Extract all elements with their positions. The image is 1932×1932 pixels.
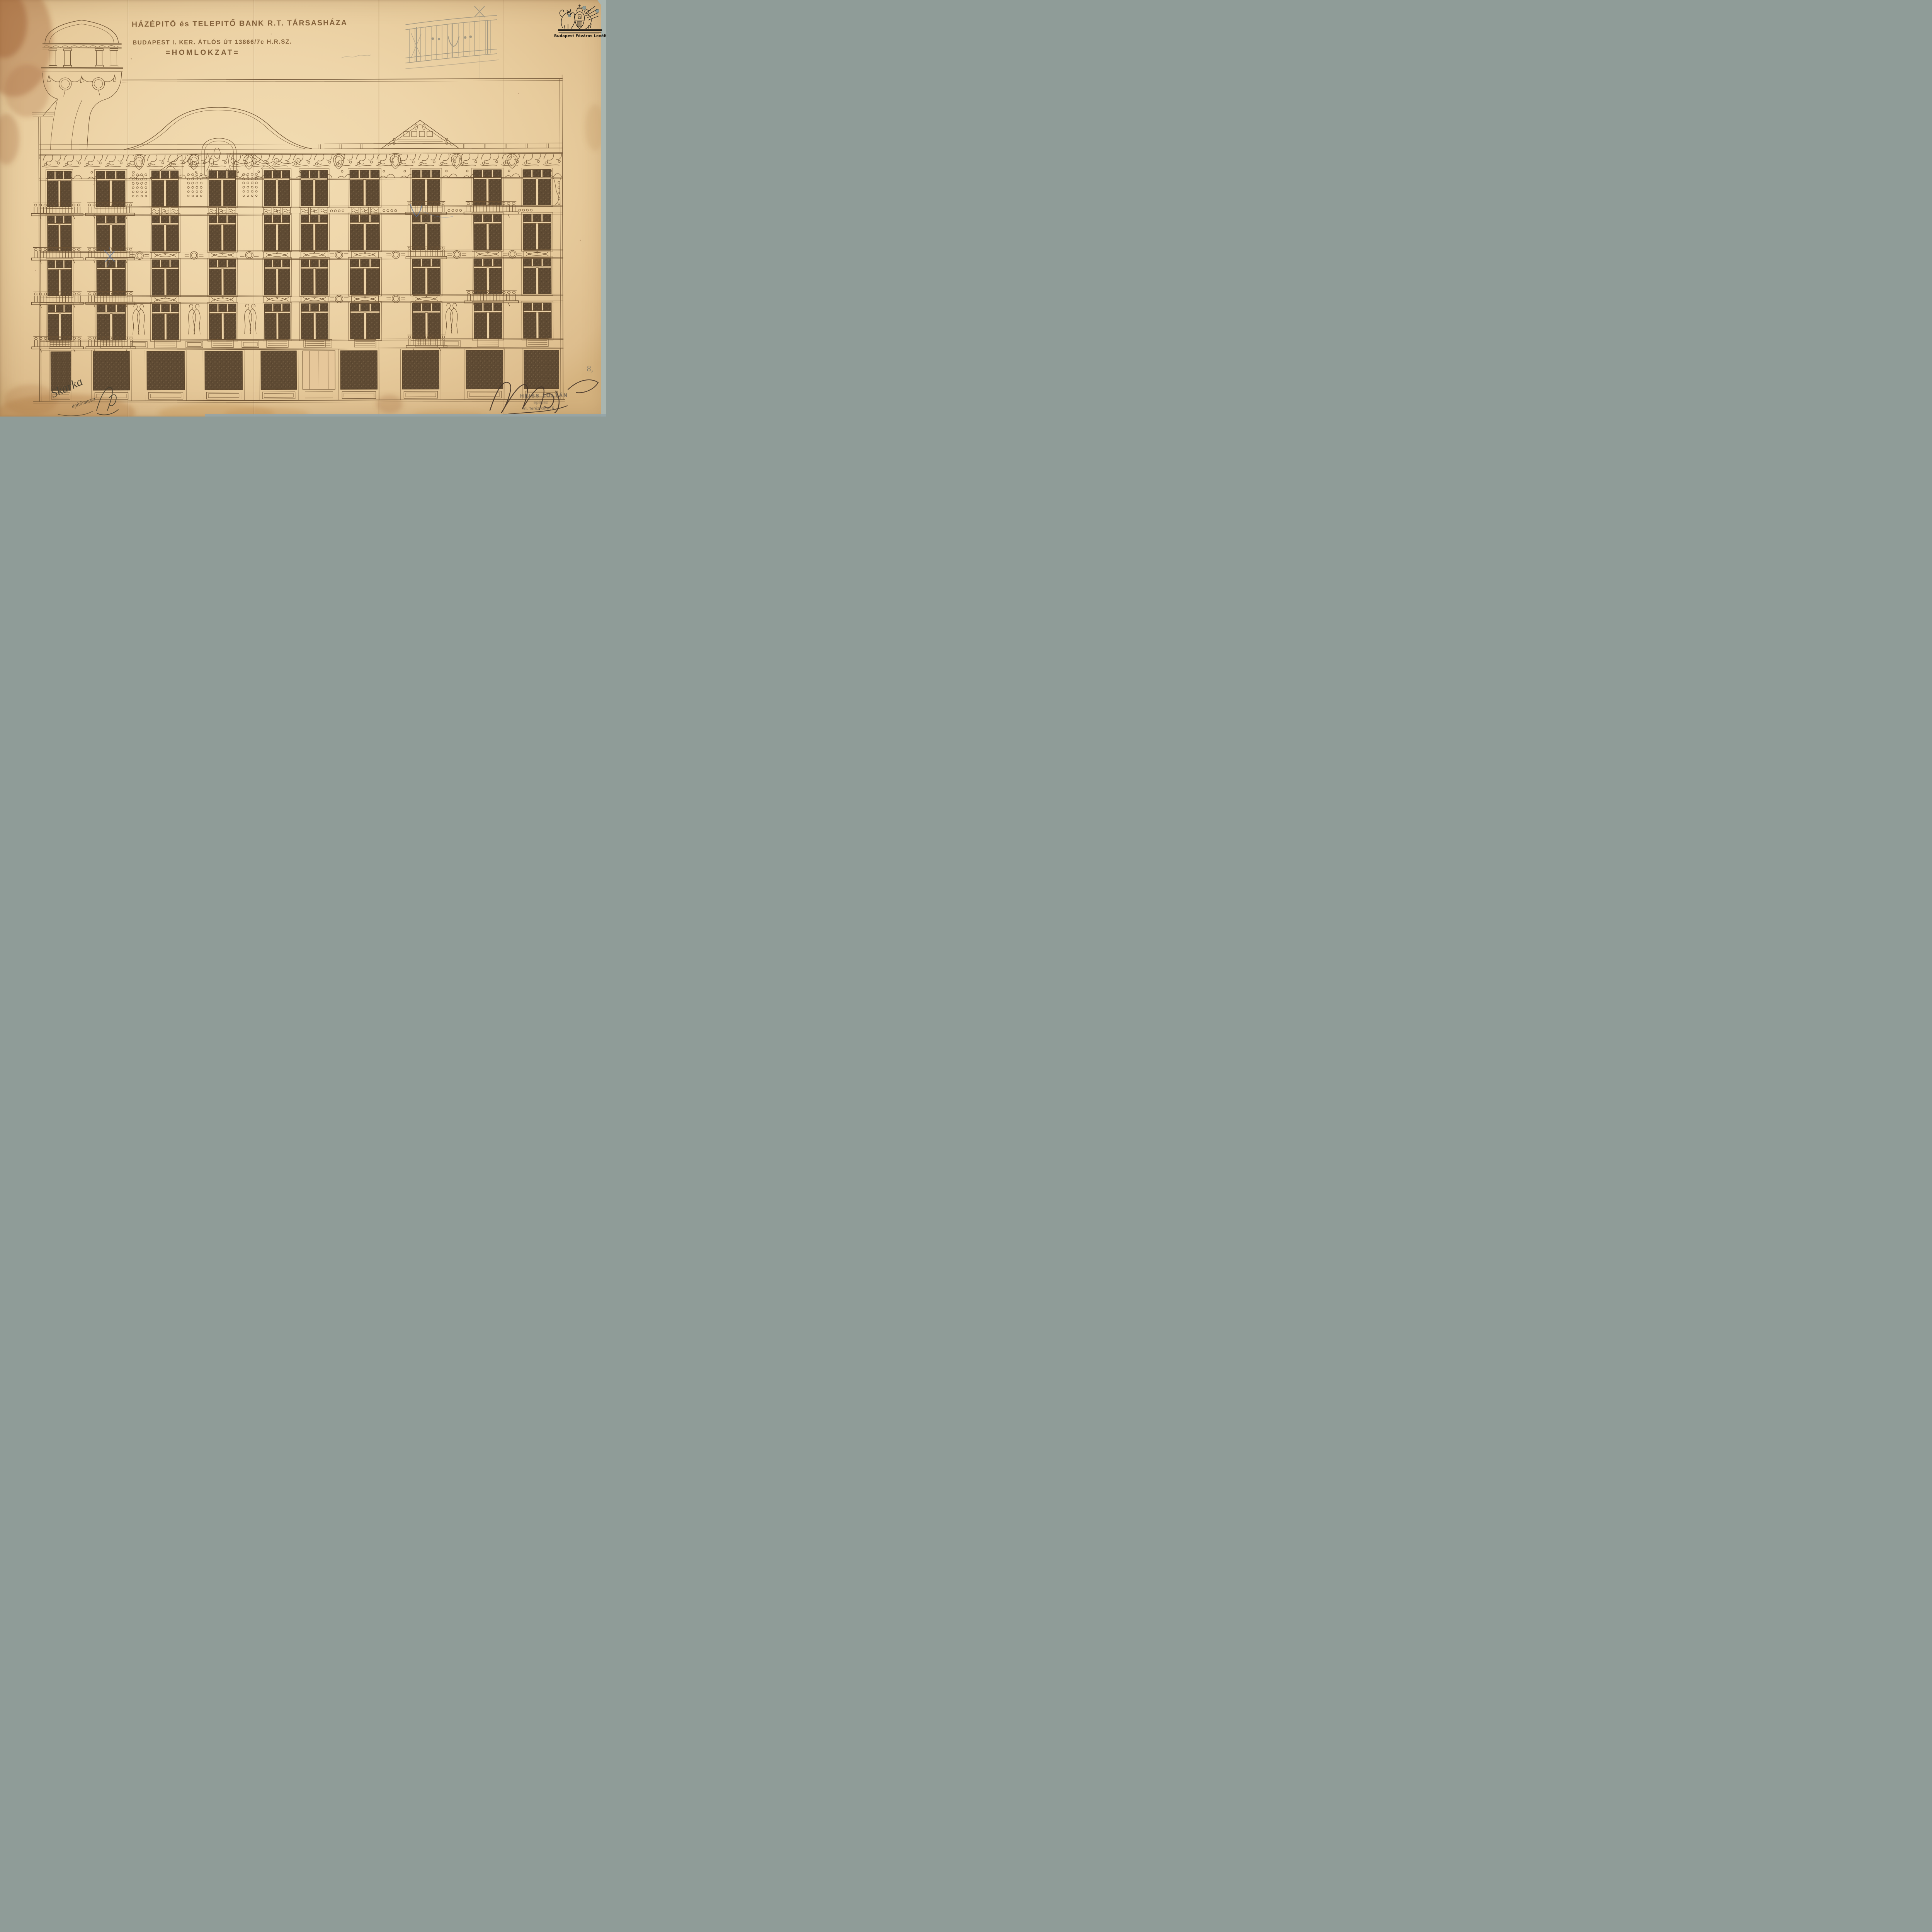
- facade-plan-svg: [0, 0, 606, 417]
- subtitle-homlokzat: =HOMLOKZAT=: [166, 49, 240, 57]
- drawing-sheet: HÁZÉPITŐ és TELEPITŐ BANK R.T. TÁRSASHÁZ…: [0, 0, 606, 417]
- right-pediment: [381, 120, 459, 149]
- facade-drawing: [31, 19, 565, 403]
- page-title-line1: HÁZÉPITŐ és TELEPITŐ BANK R.T. TÁRSASHÁZ…: [132, 19, 347, 29]
- lion-figure: [560, 9, 575, 29]
- page-title-line2: BUDAPEST I. KER. ÁTLÓS ÚT 13866/7c H.R.S…: [133, 39, 292, 47]
- architect-stamp-name: HEISS ZOLTÁN: [520, 392, 568, 399]
- turret-garland-corbel: [43, 73, 122, 150]
- archive-stamp-caption: Budapest Főváros Levéltára: [554, 34, 606, 38]
- attic-base-band: [39, 143, 563, 150]
- roof-cornice-line: [122, 78, 563, 82]
- central-entrance-door: [303, 340, 335, 398]
- ground-storefronts: [33, 339, 565, 403]
- architect-stamp-address: VI. Teréz-körut 6.: [523, 406, 555, 411]
- caryatid-figures: [133, 303, 457, 335]
- turret-columns: [49, 49, 118, 68]
- window-grid: [46, 168, 553, 342]
- punch-holes: [568, 6, 599, 17]
- page-number: 8,: [586, 364, 594, 373]
- pencil-sketch: [342, 6, 498, 79]
- archive-emblem: [558, 5, 602, 34]
- architect-stamp-title: építész: [534, 400, 548, 405]
- faint-pencil-note: [342, 55, 371, 58]
